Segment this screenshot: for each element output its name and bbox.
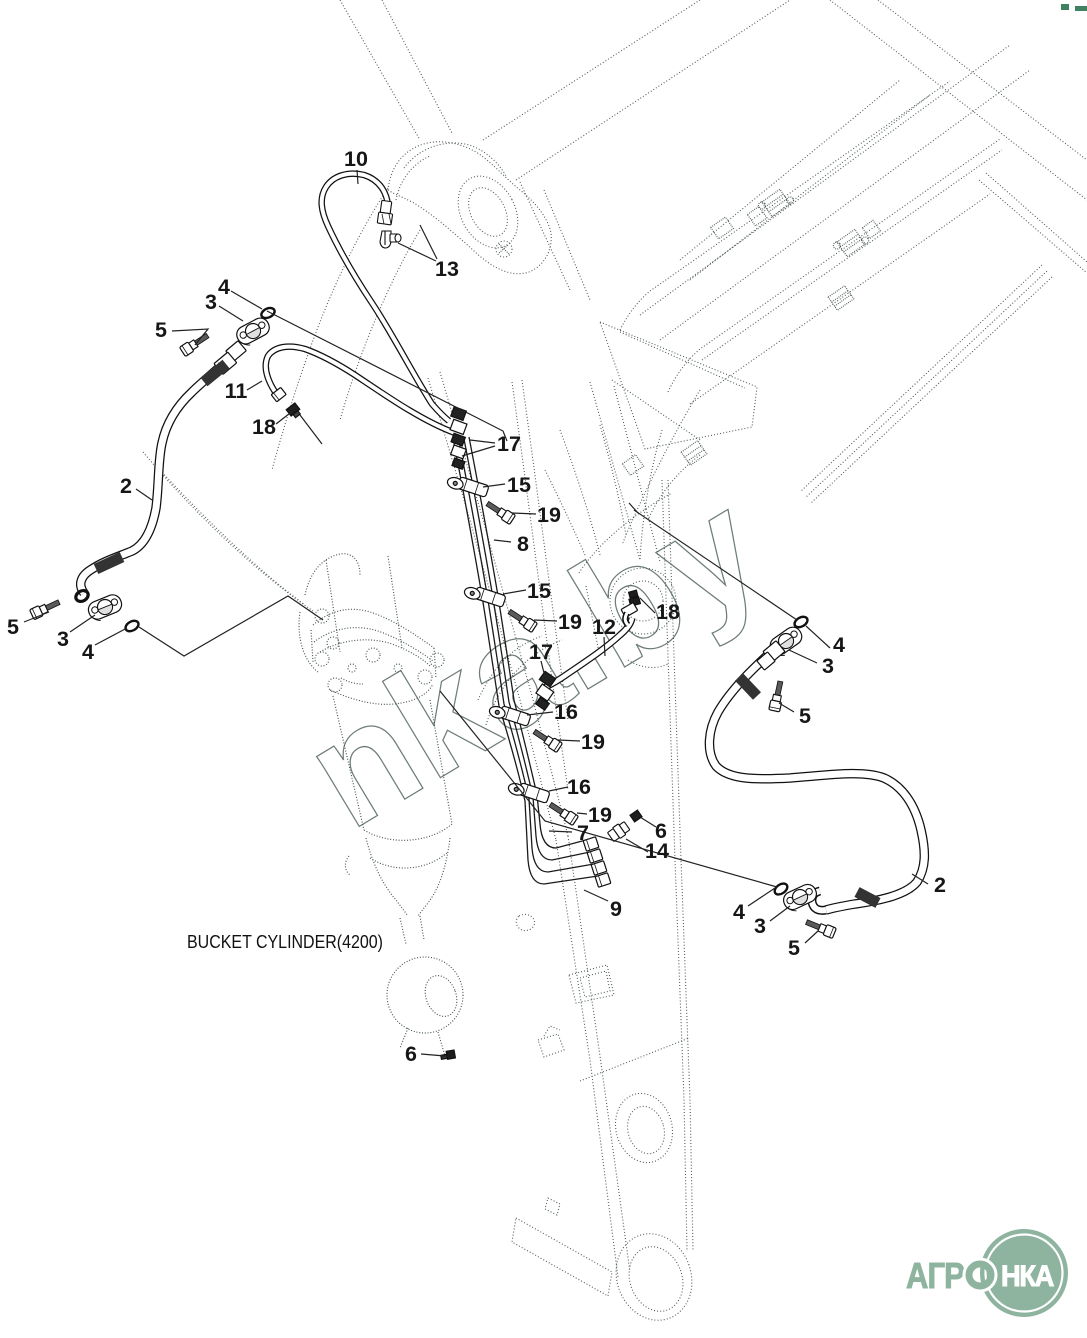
svg-text:19: 19 bbox=[588, 803, 612, 827]
svg-text:3: 3 bbox=[57, 627, 69, 651]
svg-text:15: 15 bbox=[507, 473, 531, 497]
svg-text:АГР: АГР bbox=[906, 1257, 964, 1297]
svg-text:4: 4 bbox=[218, 275, 230, 299]
svg-text:12: 12 bbox=[592, 615, 616, 639]
svg-text:13: 13 bbox=[435, 257, 459, 281]
svg-text:19: 19 bbox=[581, 730, 605, 754]
svg-text:3: 3 bbox=[205, 290, 217, 314]
svg-text:15: 15 bbox=[527, 579, 551, 603]
svg-text:4: 4 bbox=[733, 900, 745, 924]
svg-text:5: 5 bbox=[155, 318, 167, 342]
svg-text:18: 18 bbox=[252, 415, 276, 439]
svg-text:17: 17 bbox=[529, 640, 553, 664]
svg-text:14: 14 bbox=[645, 839, 669, 863]
svg-text:11: 11 bbox=[225, 379, 248, 403]
svg-text:10: 10 bbox=[344, 147, 368, 171]
svg-text:5: 5 bbox=[7, 615, 19, 639]
svg-text:3: 3 bbox=[754, 914, 766, 938]
svg-text:8: 8 bbox=[517, 532, 529, 556]
svg-text:3: 3 bbox=[822, 654, 834, 678]
svg-text:19: 19 bbox=[537, 503, 561, 527]
svg-text:6: 6 bbox=[405, 1042, 417, 1066]
svg-text:5: 5 bbox=[799, 704, 811, 728]
svg-text:17: 17 bbox=[497, 432, 521, 456]
svg-text:2: 2 bbox=[934, 873, 946, 897]
svg-text:4: 4 bbox=[833, 633, 845, 657]
svg-text:19: 19 bbox=[558, 610, 582, 634]
svg-text:2: 2 bbox=[120, 474, 132, 498]
svg-text:16: 16 bbox=[554, 700, 578, 724]
svg-text:4: 4 bbox=[82, 640, 94, 664]
svg-text:18: 18 bbox=[656, 600, 680, 624]
svg-text:5: 5 bbox=[788, 936, 800, 960]
svg-text:BUCKET CYLINDER(4200): BUCKET CYLINDER(4200) bbox=[187, 931, 383, 952]
svg-text:НКА: НКА bbox=[1001, 1260, 1054, 1293]
svg-text:16: 16 bbox=[567, 775, 591, 799]
svg-text:9: 9 bbox=[610, 897, 622, 921]
svg-text:7: 7 bbox=[577, 821, 589, 845]
